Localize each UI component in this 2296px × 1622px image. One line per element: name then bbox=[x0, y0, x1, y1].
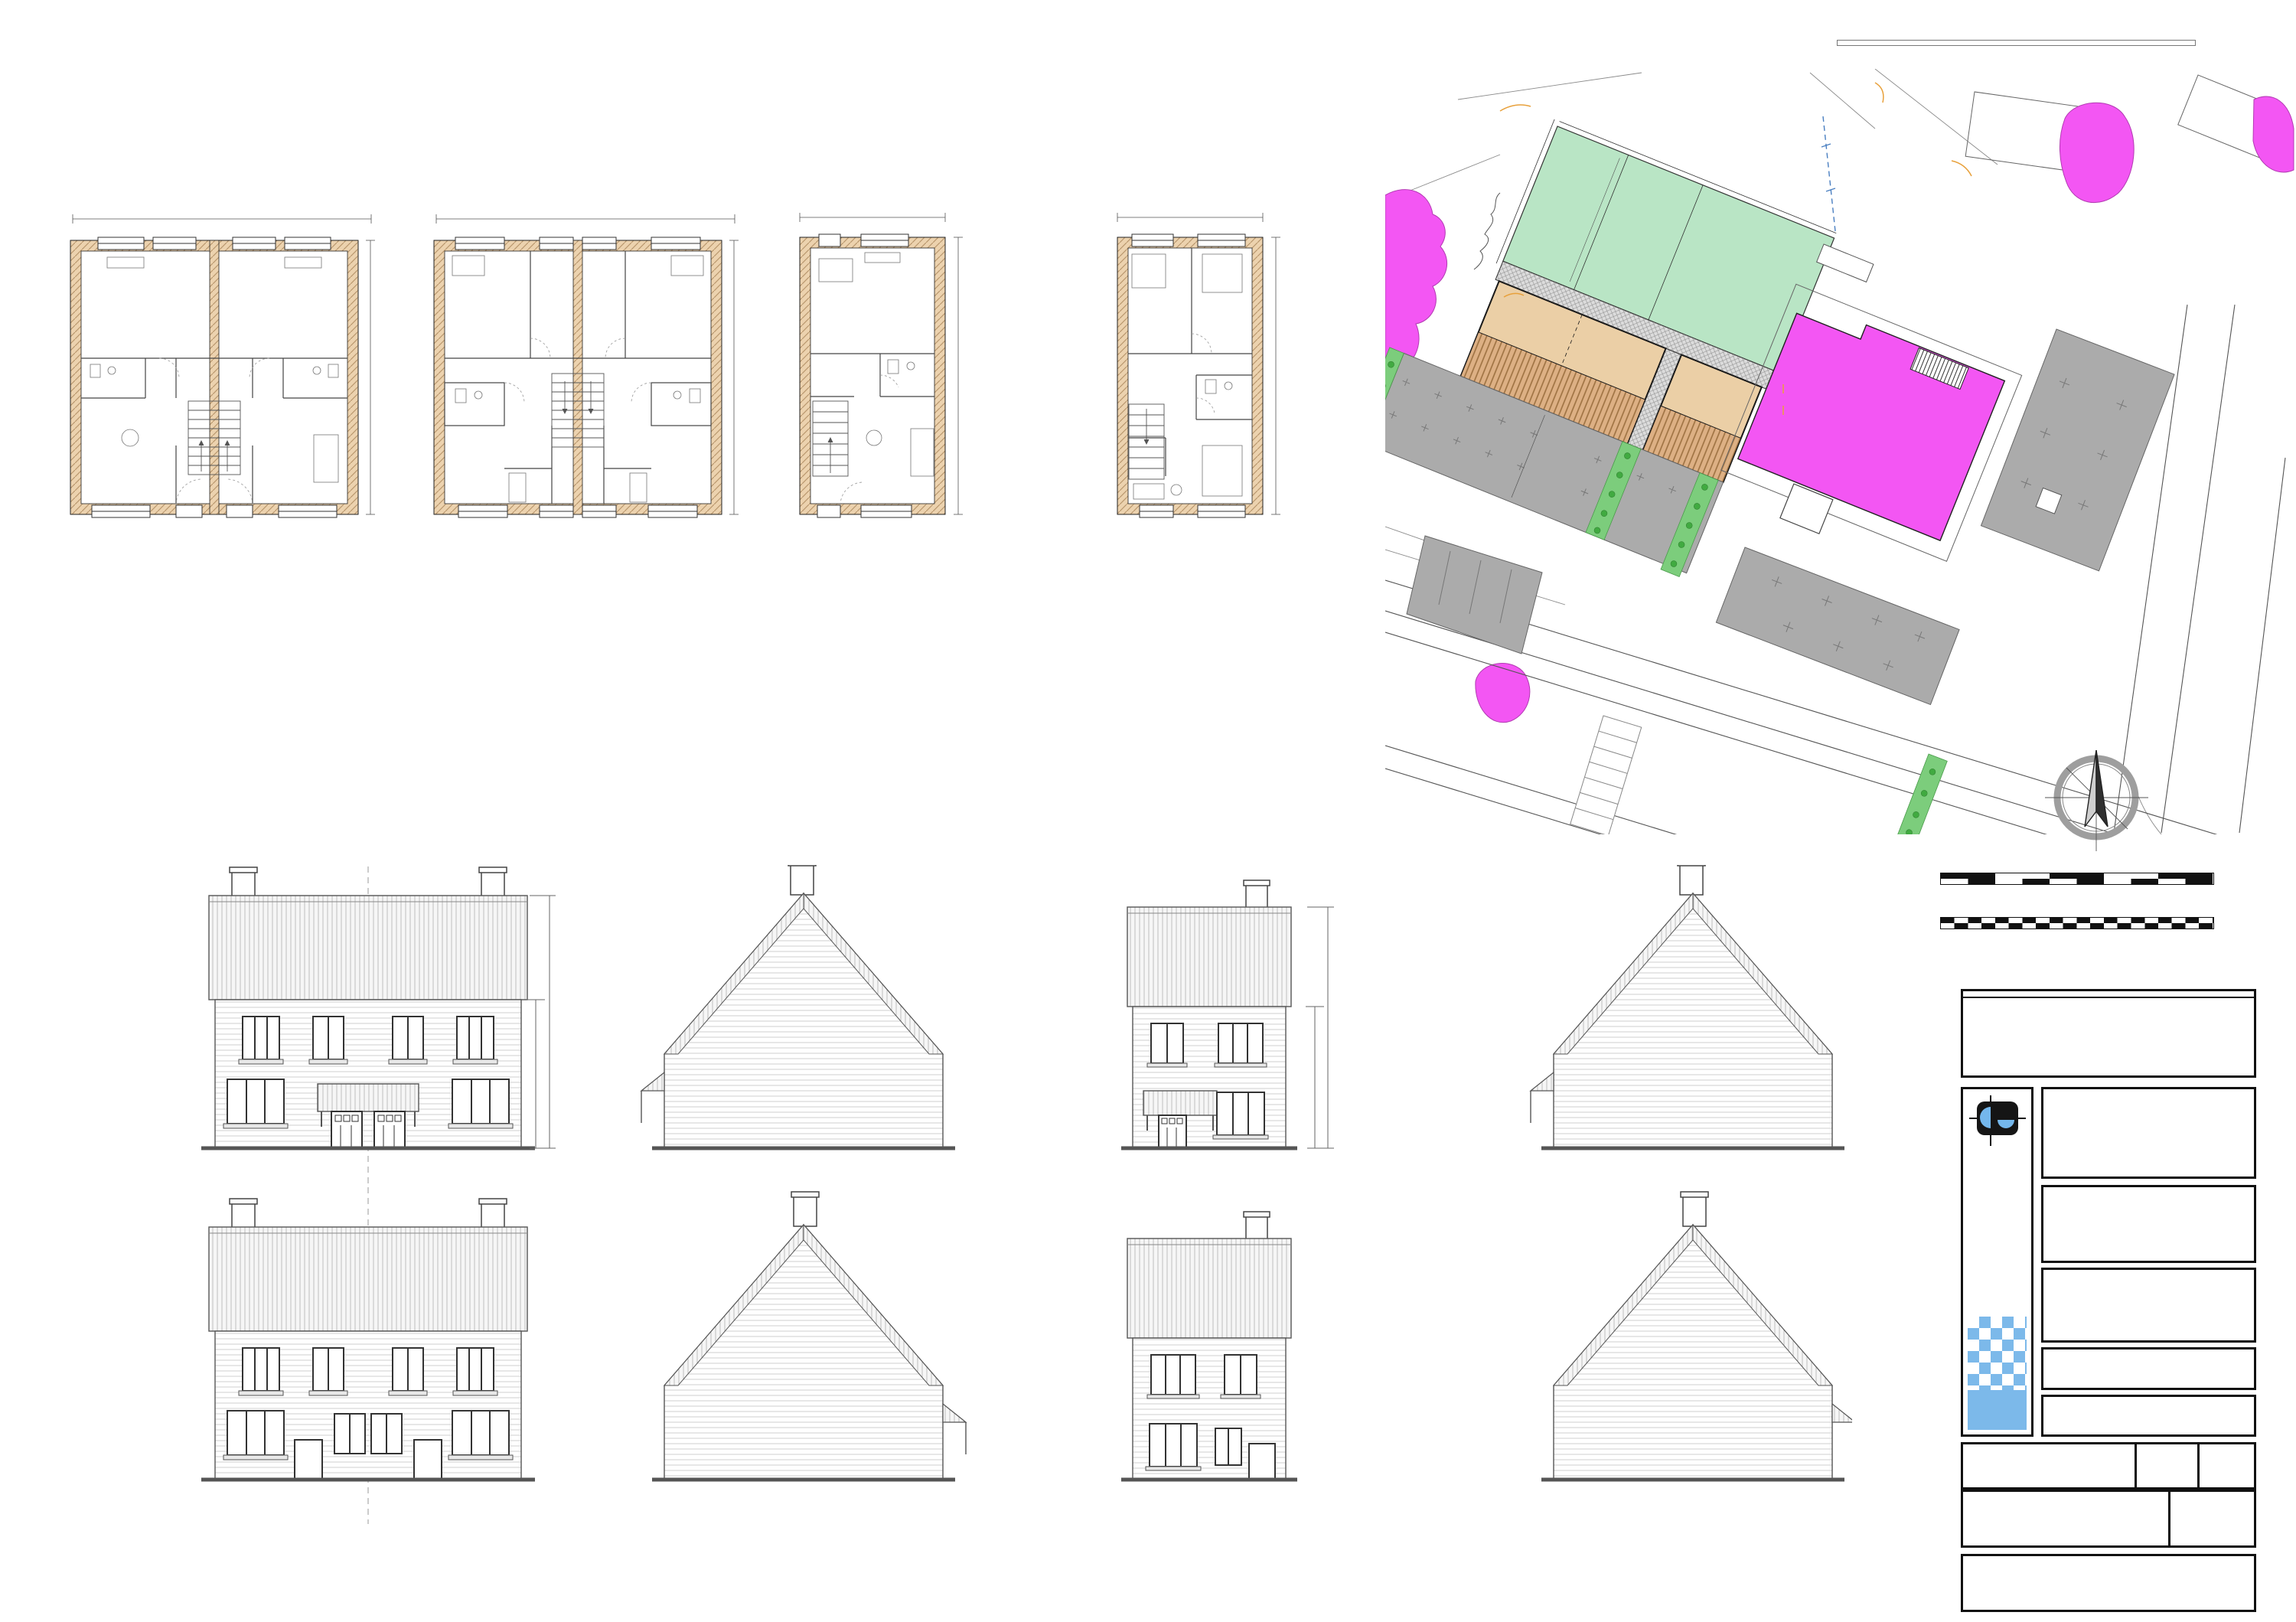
hedge-line bbox=[1474, 193, 1500, 269]
site-plan-map bbox=[1385, 69, 2296, 834]
drawing-number-value bbox=[1963, 1496, 2168, 1502]
location-box bbox=[2041, 1268, 2256, 1343]
rear-elevation-3 bbox=[1121, 1212, 1297, 1480]
magenta-blob-left bbox=[1385, 190, 1447, 372]
elevation-title bbox=[1124, 1150, 1130, 1174]
scalebar-labels bbox=[1935, 887, 2272, 899]
copyright-box bbox=[1837, 40, 2196, 46]
magenta-blob-top-right bbox=[2060, 103, 2134, 202]
paper-cell bbox=[1963, 1444, 2135, 1487]
revisions-header bbox=[1963, 991, 2254, 998]
date-cell bbox=[2197, 1444, 2254, 1487]
kaye-verge bbox=[1896, 754, 1947, 834]
disclaimer-text bbox=[1963, 1556, 2254, 1564]
side-elevation-12-rear bbox=[652, 1192, 966, 1480]
scale-value bbox=[2137, 1448, 2197, 1450]
side-elevation-3-rear bbox=[1541, 1192, 1852, 1480]
front-elevation-3 bbox=[1121, 880, 1297, 1148]
plan-ground-3-drawing bbox=[788, 208, 980, 560]
side-elevation-12 bbox=[641, 865, 955, 1148]
location-text bbox=[2043, 1275, 2254, 1278]
elevation-title bbox=[1124, 1487, 1130, 1512]
title-header bbox=[2043, 1397, 2254, 1402]
layby-parking bbox=[1407, 536, 1542, 654]
magenta-blob-bottom-left bbox=[1476, 664, 1530, 723]
pub-parking bbox=[1716, 547, 1959, 705]
paper-value bbox=[1963, 1448, 2135, 1450]
company-logo bbox=[1968, 1095, 2027, 1146]
brand-text bbox=[1963, 1146, 2031, 1314]
magenta-blob-right-edge bbox=[2253, 96, 2294, 172]
scalebar-labels bbox=[1935, 932, 2272, 943]
plan-title bbox=[796, 536, 803, 560]
address-box bbox=[2041, 1087, 2256, 1179]
plan-ground-12-drawing bbox=[61, 208, 390, 560]
drawing-sheet bbox=[0, 0, 2296, 1622]
location-header bbox=[2043, 1270, 2254, 1275]
plan-title bbox=[429, 536, 435, 560]
client-box bbox=[2041, 1185, 2256, 1263]
drawing-number-cell bbox=[1963, 1492, 2168, 1545]
elevation-title bbox=[651, 1150, 658, 1174]
plan-first-12 bbox=[425, 208, 754, 560]
title-box bbox=[2041, 1395, 2256, 1437]
revision-value bbox=[2170, 1496, 2254, 1497]
project-text bbox=[2043, 1355, 2254, 1358]
disclaimer-box bbox=[1961, 1554, 2256, 1612]
elevation-title bbox=[651, 1487, 658, 1512]
scalebar-1 bbox=[1940, 873, 2214, 885]
logo-checker-pattern bbox=[1968, 1317, 2027, 1430]
front-elevation-12 bbox=[201, 865, 535, 1193]
plan-title bbox=[65, 536, 72, 560]
access-steps bbox=[1570, 716, 1642, 834]
elevation-title bbox=[220, 1487, 227, 1512]
outbuilding bbox=[1817, 244, 1874, 282]
plan-title bbox=[1111, 536, 1118, 560]
scalebar-labels bbox=[1935, 903, 2272, 915]
project-box bbox=[2041, 1347, 2256, 1390]
revisions-body bbox=[1963, 998, 2254, 1001]
scale-bars bbox=[1935, 859, 2272, 951]
drawing-number-row bbox=[1961, 1490, 2256, 1548]
title-text bbox=[2043, 1402, 2254, 1405]
scale-cell bbox=[2135, 1444, 2197, 1487]
elevations-drawing bbox=[176, 865, 1852, 1539]
plan-first-3-drawing bbox=[1106, 208, 1297, 560]
kaye-parking bbox=[1981, 329, 2174, 571]
project-header bbox=[2043, 1349, 2254, 1355]
revision-cell bbox=[2168, 1492, 2254, 1545]
plan-ground-12 bbox=[61, 208, 390, 560]
plan-ground-3 bbox=[788, 208, 980, 560]
rear-elevation-12 bbox=[201, 1187, 535, 1524]
client-header bbox=[2043, 1187, 2254, 1193]
elevation-title bbox=[1555, 1487, 1562, 1512]
logo-strip bbox=[1961, 1087, 2033, 1437]
estate-group bbox=[1385, 94, 1836, 583]
elevation-title bbox=[220, 1150, 227, 1174]
paper-scale-date-row bbox=[1961, 1442, 2256, 1490]
elevation-title bbox=[1555, 1150, 1562, 1174]
date-value bbox=[2200, 1448, 2254, 1450]
scalebar-2 bbox=[1940, 917, 2214, 929]
plan-first-12-drawing bbox=[425, 208, 754, 560]
side-elevation-3 bbox=[1531, 865, 1844, 1148]
north-arrow bbox=[2045, 750, 2148, 853]
revisions-box bbox=[1961, 989, 2256, 1078]
plan-first-3 bbox=[1106, 208, 1297, 560]
scalebar-labels bbox=[1935, 859, 2272, 870]
